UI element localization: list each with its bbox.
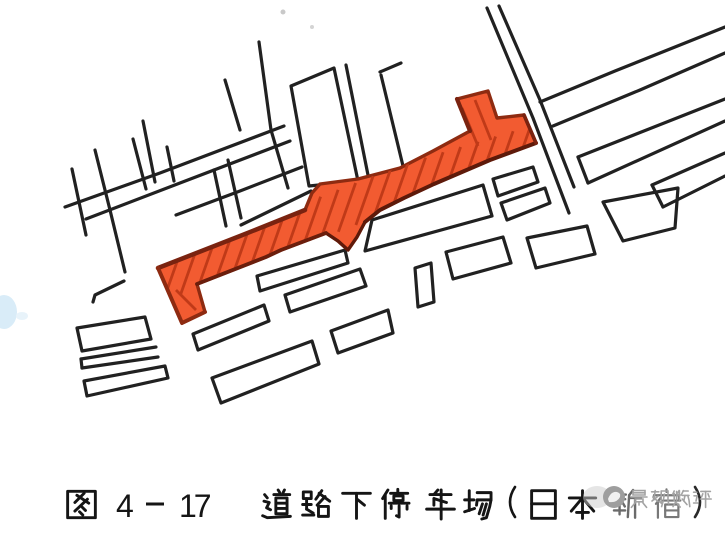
svg-text:4: 4 bbox=[116, 488, 134, 524]
svg-text:17: 17 bbox=[179, 488, 211, 524]
